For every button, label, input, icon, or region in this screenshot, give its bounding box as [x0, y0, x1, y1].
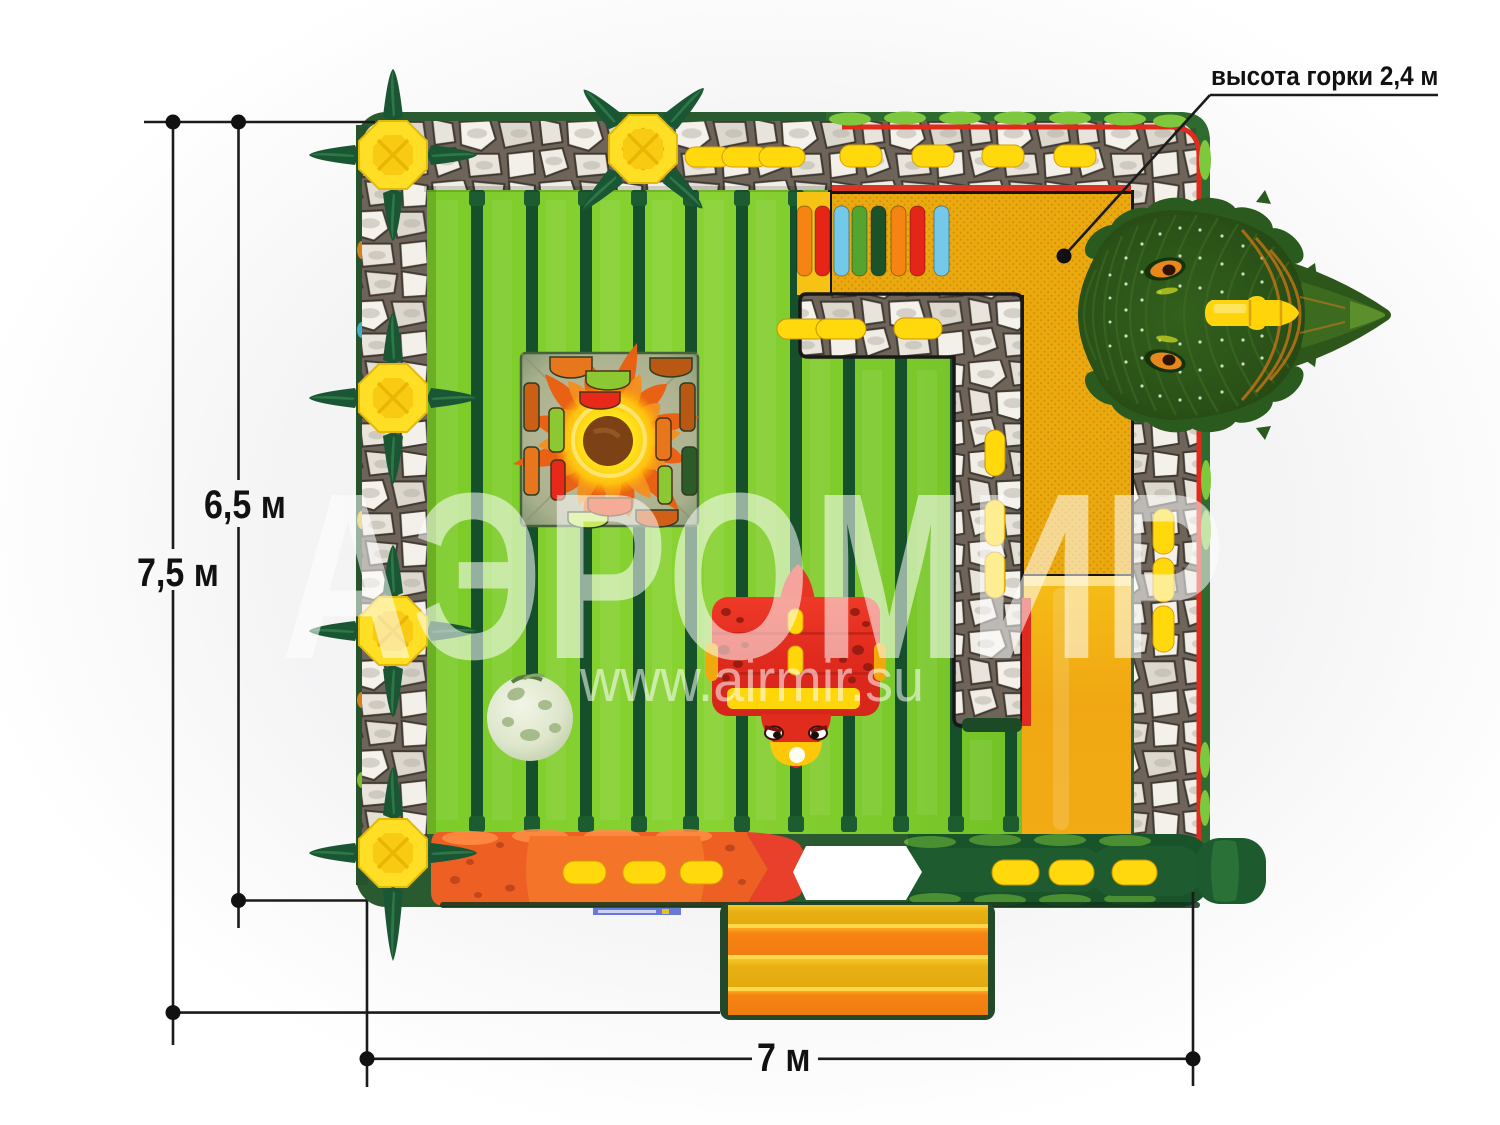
svg-text:6,5 м: 6,5 м — [204, 481, 286, 526]
svg-text:www.airmir.su: www.airmir.su — [579, 648, 924, 714]
svg-text:высота горки 2,4 м: высота горки 2,4 м — [1211, 62, 1438, 91]
svg-text:7,5 м: 7,5 м — [137, 549, 219, 594]
svg-text:7 м: 7 м — [757, 1034, 810, 1079]
